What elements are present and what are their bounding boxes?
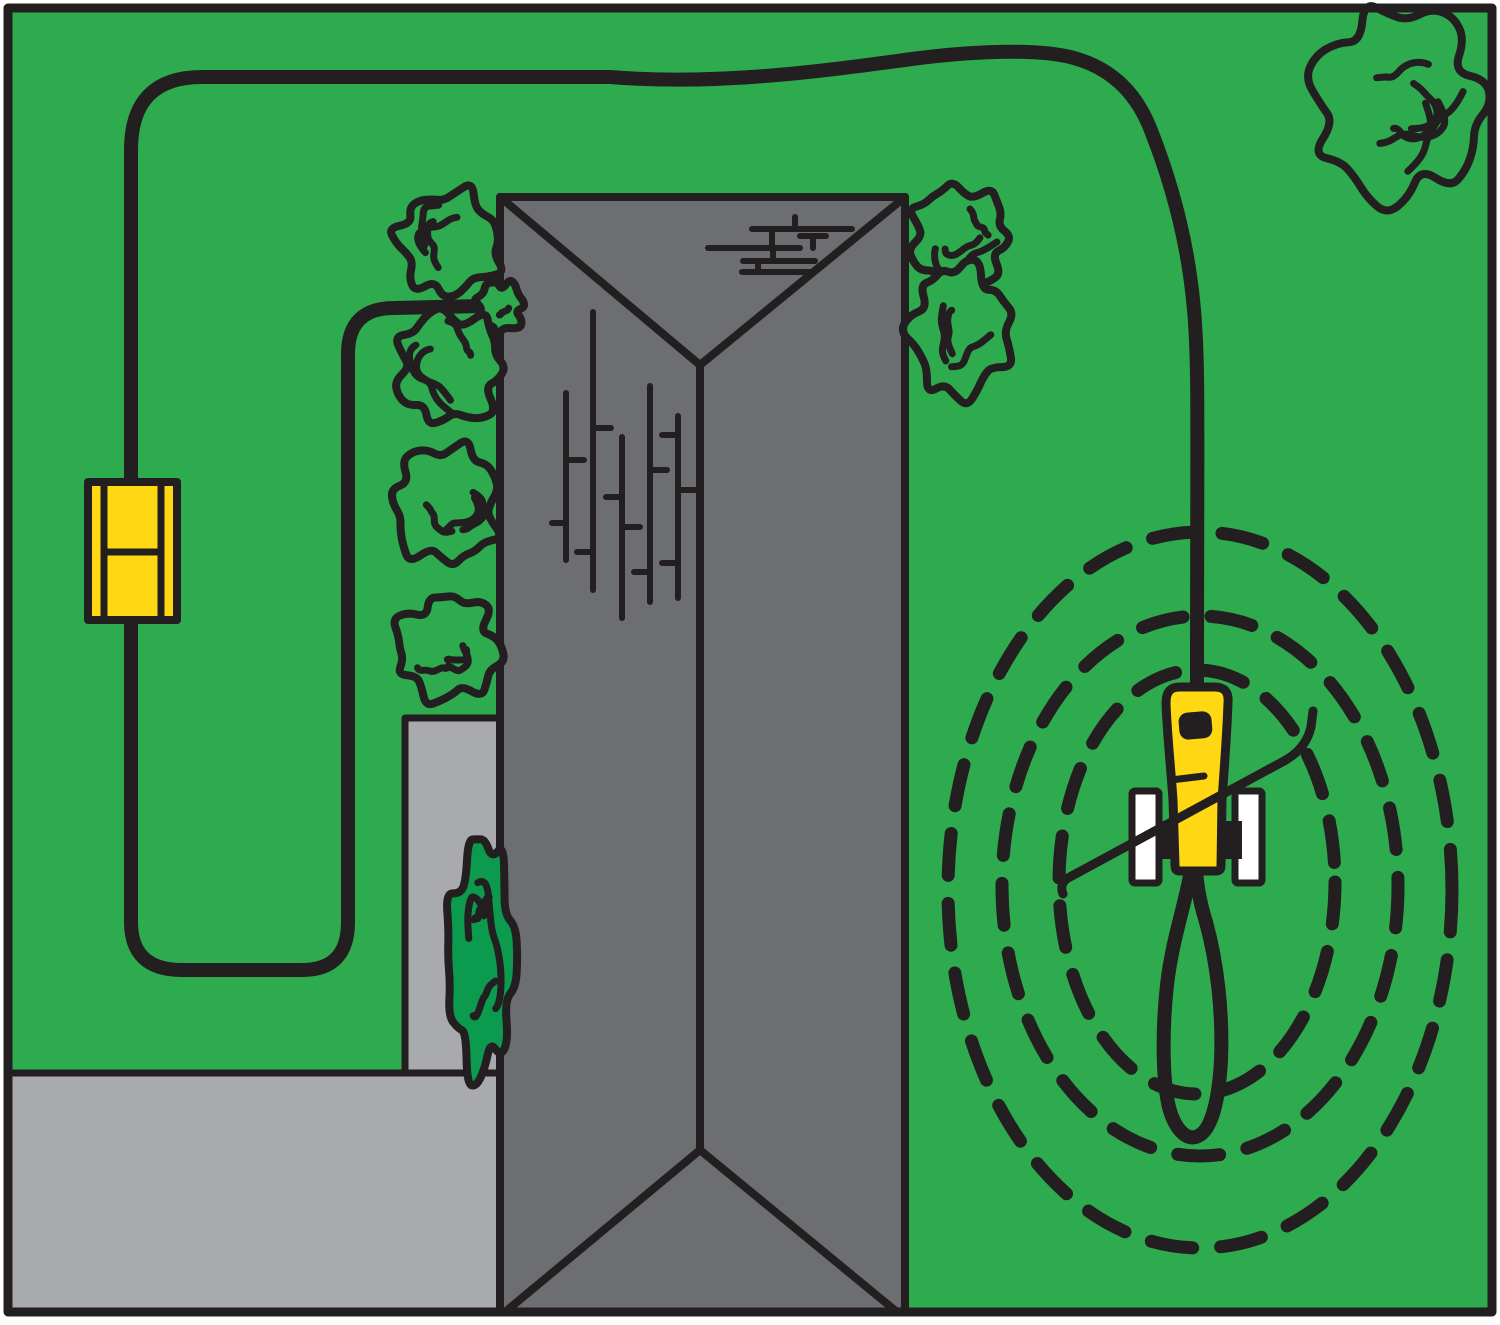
mower-axle-right — [1223, 821, 1242, 859]
yard-diagram-canvas — [0, 0, 1500, 1325]
mower-window — [1178, 711, 1213, 741]
yard-illustration — [0, 0, 1500, 1325]
driveway — [8, 1073, 500, 1312]
bush-left-4-detail — [418, 667, 450, 671]
mower-body-seam — [1171, 776, 1204, 780]
